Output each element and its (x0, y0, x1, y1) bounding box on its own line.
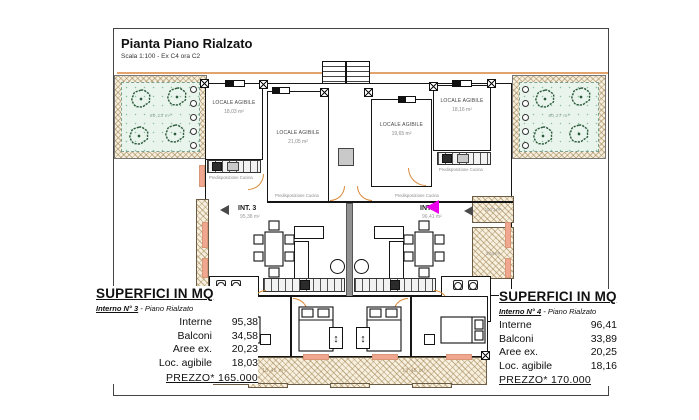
window-sill (505, 222, 511, 248)
appliance-icon (227, 162, 239, 171)
unit-int3-label: INT. 3 (238, 205, 256, 212)
tree-icon (130, 88, 152, 110)
tree-icon (570, 86, 592, 108)
shrub-icon (522, 128, 529, 135)
shrub-icon (522, 100, 529, 107)
appliance-icon (390, 280, 400, 290)
floorplan-sheet: { "title_block": { "title": "Pianta Pian… (0, 0, 699, 420)
tree-icon (534, 88, 556, 110)
laundry-circle-icon (354, 259, 369, 274)
window-sill (202, 258, 208, 278)
window-icon (272, 87, 290, 94)
row-value: 18,03 (224, 357, 258, 371)
wall-junction-icon (429, 82, 438, 91)
panel-row: Aree ex.20,25 (499, 346, 617, 360)
room-d-area: 18,16 m² (434, 107, 490, 113)
panel-left-unit: Interno N° 3 (96, 304, 138, 313)
row-label: Balconi (499, 333, 533, 347)
shaft-block (338, 148, 354, 166)
panel-row: Balconi34,58 (96, 330, 258, 344)
shrub-icon (522, 142, 529, 149)
panel-left-unit-suffix: - Piano Rialzato (138, 304, 193, 313)
room-locale-d: LOCALE AGIBILE 18,16 m² (433, 85, 491, 151)
kitchen-note-int3: Predisposizione Cucina (275, 193, 319, 198)
appliance-icon (212, 162, 222, 171)
panel-right-heading: SUPERFICI IN MQ (499, 289, 659, 304)
laundry-circle-icon (330, 259, 345, 274)
bedroom-partition (290, 296, 292, 357)
sink-icon (468, 280, 478, 290)
window-icon (452, 80, 472, 87)
balcony-left-area: 13,45 m² (262, 368, 286, 374)
row-label: Aree ex. (499, 346, 538, 360)
shrub-icon (190, 128, 197, 135)
row-value: 20,25 (583, 346, 617, 360)
room-a-area: 18,03 m² (206, 109, 262, 115)
panel-row: Loc. agibile18,03 (96, 357, 258, 371)
nightstand (424, 334, 435, 345)
shrub-icon (522, 86, 529, 93)
panel-row: Interne96,41 (499, 319, 617, 333)
row-value: 95,38 (224, 316, 258, 330)
page-title: Pianta Piano Rialzato (121, 36, 252, 51)
entry-arrow-icon (220, 205, 229, 215)
wall-junction-icon (481, 351, 490, 360)
shrub-icon (190, 86, 197, 93)
garden-right: 80,27 m² (512, 75, 606, 159)
wall-junction-icon (259, 80, 268, 89)
appliance-icon (457, 154, 469, 163)
row-label: Interne (499, 319, 532, 333)
panel-row: Balconi33,89 (499, 333, 617, 347)
window-sill (505, 258, 511, 278)
panel-left-heading: SUPERFICI IN MQ (96, 286, 258, 301)
row-label: Balconi (178, 330, 212, 344)
appliance-icon (442, 154, 452, 163)
window-icon (225, 80, 245, 87)
garden-left-lawn: 80,23 m² (121, 82, 200, 152)
panel-right-price: PREZZO* 170.000 (499, 374, 659, 386)
window-sill (202, 222, 208, 248)
wall-junction-icon (200, 79, 209, 88)
wall-junction-icon (320, 88, 329, 97)
room-b-name: LOCALE AGIBILE (268, 130, 328, 136)
tree-icon (568, 123, 590, 145)
bed-right-inner (366, 306, 402, 352)
window-sill (446, 354, 472, 360)
kitchen-note-d: Predisposizione Cucina (439, 167, 483, 172)
panel-row: Interne95,38 (96, 316, 258, 330)
scale-note: Scala 1:100 - Ex C4 ora C2 (121, 53, 200, 60)
tree-icon (532, 125, 554, 147)
wall-junction-icon (364, 88, 373, 97)
room-d-name: LOCALE AGIBILE (434, 98, 490, 104)
row-value: 20,23 (224, 343, 258, 357)
room-c-area: 19,65 m² (372, 131, 431, 137)
row-value: 34,58 (224, 330, 258, 344)
window-sill (303, 354, 329, 360)
room-locale-b: LOCALE AGIBILE 21,05 m² (267, 91, 329, 203)
window-sill (372, 354, 398, 360)
terrace-right-top-area: 10,71 m² (485, 207, 502, 212)
sink-icon (453, 280, 463, 290)
panel-right-unit-suffix: - Piano Rialzato (541, 307, 596, 316)
room-b-area: 21,05 m² (268, 139, 328, 145)
shrub-icon (190, 142, 197, 149)
row-label: Interne (179, 316, 212, 330)
garden-right-area-label: 80,27 m² (520, 113, 598, 118)
balcony-step (330, 383, 370, 388)
row-label: Loc. agibile (499, 360, 552, 374)
garden-left: 80,23 m² (114, 75, 207, 159)
tree-icon (166, 86, 188, 108)
room-c-name: LOCALE AGIBILE (372, 122, 431, 128)
panel-row: Loc. agibile18,16 (499, 360, 617, 374)
panel-left-price: PREZZO* 165.000 (96, 372, 258, 384)
surfaces-panel-int3: SUPERFICI IN MQ Interno N° 3 - Piano Ria… (96, 286, 258, 384)
magenta-pointer-icon (426, 200, 439, 214)
terrace-right-mid-area: 2,64 m² (486, 251, 500, 256)
sofa-right (374, 226, 404, 239)
garden-left-area-label: 80,23 m² (122, 113, 199, 118)
row-value: 33,89 (583, 333, 617, 347)
panel-row: Aree ex.20,23 (96, 343, 258, 357)
window-sill (199, 165, 205, 187)
tree-icon (128, 125, 150, 147)
room-locale-a: LOCALE AGIBILE 18,03 m² (205, 83, 263, 160)
kitchen-note-a: Predisposizione Cucina (209, 175, 253, 180)
balcony-right-area: 13,45 m² (402, 368, 426, 374)
balcony-step (412, 383, 452, 388)
panel-left-subheading: Interno N° 3 - Piano Rialzato (96, 304, 258, 313)
panel-right-unit: Interno N° 4 (499, 307, 541, 316)
row-label: Loc. agibile (159, 357, 212, 371)
dining-table-right (400, 220, 448, 278)
garden-right-lawn: 80,27 m² (519, 82, 599, 152)
kitchen-note-int4: Predisposizione Cucina (395, 193, 439, 198)
bedroom-partition (410, 296, 412, 357)
shutter-arrow-icon: ↕ (356, 327, 370, 349)
bed-right-outer (440, 316, 486, 344)
tree-icon (164, 123, 186, 145)
room-a-name: LOCALE AGIBILE (206, 100, 262, 106)
panel-right-subheading: Interno N° 4 - Piano Rialzato (499, 307, 659, 316)
sofa-left (294, 226, 324, 239)
row-label: Aree ex. (173, 343, 212, 357)
window-icon (398, 96, 416, 103)
shutter-arrow-icon: ↕ (329, 327, 343, 349)
wall-junction-icon (487, 79, 496, 88)
entry-arrow-icon (464, 206, 473, 216)
nightstand (260, 334, 271, 345)
wall-living-separator (267, 201, 513, 203)
surfaces-panel-int4: SUPERFICI IN MQ Interno N° 4 - Piano Ria… (499, 289, 659, 386)
dining-table-left (250, 220, 298, 278)
shrub-icon (190, 100, 197, 107)
row-value: 96,41 (583, 319, 617, 333)
appliance-icon (300, 280, 310, 290)
row-value: 18,16 (583, 360, 617, 374)
